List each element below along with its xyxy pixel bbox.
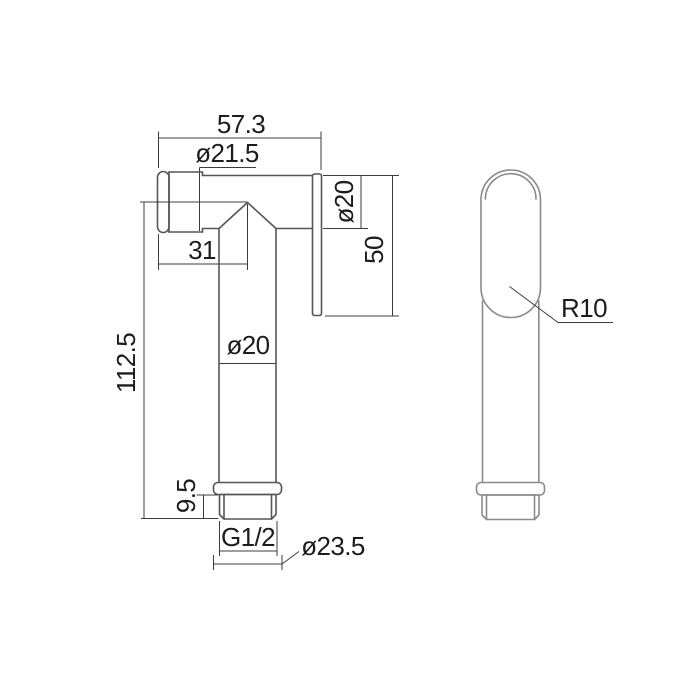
dim-label-thread-spec: G1/2 [221, 522, 275, 552]
collar-outline [214, 483, 282, 495]
front-view-object [477, 170, 545, 520]
dim-label-nozzle-offset: 31 [188, 235, 216, 265]
dim-label-outlet-diameter: ø20 [329, 180, 359, 223]
dim-head-radius: R10 [510, 287, 614, 324]
dim-label-collar-diameter: ø23.5 [301, 531, 365, 561]
dim-label-thread-length: 9.5 [171, 479, 201, 513]
handle-body-walls-front [483, 301, 539, 483]
dim-body-diameter: ø20 [220, 330, 276, 364]
dim-label-head-radius: R10 [561, 293, 607, 323]
head-capsule-outline [481, 170, 541, 318]
thread-relief-lines-front [487, 495, 535, 520]
thread-outline-front [482, 495, 539, 520]
back-plate-outline [313, 174, 322, 316]
cap-seam-arc [485, 174, 536, 199]
dim-label-head-diameter: ø21.5 [195, 138, 259, 168]
dim-label-back-plate-length: 50 [359, 236, 389, 264]
extension-lines [214, 555, 283, 570]
thread-relief-lines [224, 495, 272, 520]
dim-label-body-diameter: ø20 [226, 330, 269, 360]
dim-label-overall-height: 112.5 [111, 333, 141, 393]
label-leader-line [200, 168, 257, 173]
dim-thread-spec: G1/2 [220, 521, 278, 556]
technical-drawing-canvas: 57.3 ø21.5 ø20 50 31 112.5 [0, 0, 700, 700]
dim-thread-length: 9.5 [141, 479, 219, 519]
dim-overall-height: 112.5 [111, 202, 247, 518]
dim-outlet-diameter: ø20 [323, 176, 399, 229]
collar-outline-front [477, 483, 545, 496]
dim-label-overall-length: 57.3 [217, 109, 265, 139]
label-leader-line [282, 552, 299, 565]
thread-outline [220, 495, 277, 520]
dim-head-diameter: ø21.5 [195, 138, 259, 231]
side-view-dimensions: 57.3 ø21.5 ø20 50 31 112.5 [111, 109, 399, 570]
front-view-dimensions: R10 [510, 287, 614, 324]
